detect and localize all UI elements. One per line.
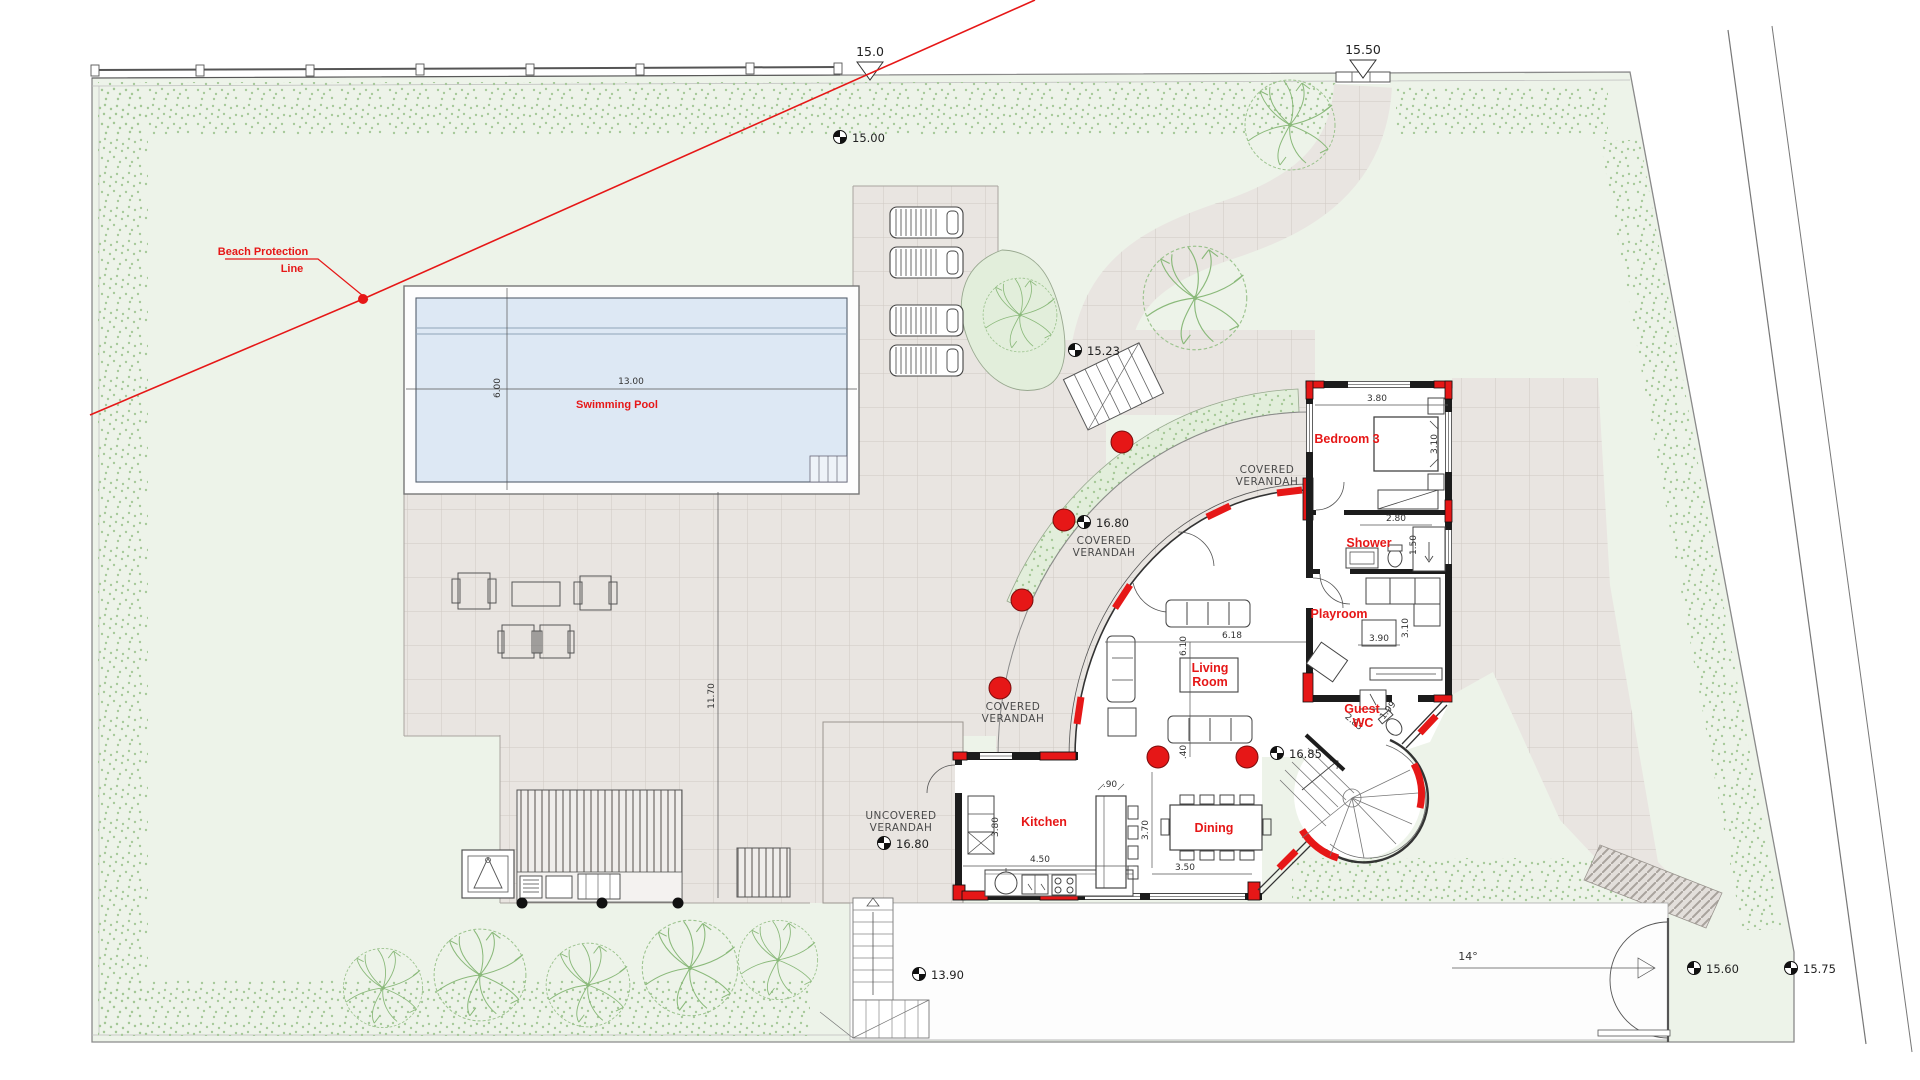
- label-covered-verandah-2b: VERANDAH: [1073, 547, 1136, 559]
- label-beach-protection-1: Beach Protection: [218, 246, 309, 258]
- marker-uncovered-verandah: 16.80: [896, 837, 929, 851]
- dim-pool-length: 13.00: [618, 377, 644, 387]
- dim-living-offset: .40: [1179, 745, 1189, 760]
- label-covered-verandah-1b: VERANDAH: [1236, 476, 1299, 488]
- marker-road: 15.75: [1803, 962, 1836, 976]
- label-beach-protection-2: Line: [281, 263, 304, 275]
- outdoor-shower-box: [462, 850, 514, 898]
- site-plan-page: 13.00 6.00 Swimming Pool 11.70: [0, 0, 1920, 1080]
- dim-kitchen-depth: 3.80: [991, 817, 1001, 837]
- label-guest-2: WC: [1353, 716, 1374, 730]
- label-playroom: Playroom: [1311, 607, 1368, 621]
- marker-plot-top: 15.0: [856, 44, 884, 59]
- marker-garden-nw: 15.00: [852, 131, 885, 145]
- dim-playroom-depth: 3.10: [1401, 618, 1411, 638]
- dim-bedroom-depth: 3.10: [1430, 434, 1440, 454]
- label-living-1: Living: [1192, 661, 1229, 675]
- label-covered-verandah-1a: COVERED: [1240, 464, 1295, 476]
- dim-driveway-angle: 14°: [1458, 950, 1478, 963]
- label-covered-verandah-2a: COVERED: [1077, 535, 1132, 547]
- label-uncovered-verandah-a: UNCOVERED: [865, 810, 936, 822]
- site-plan: 13.00 6.00 Swimming Pool 11.70: [0, 0, 1920, 1080]
- label-covered-verandah-3b: VERANDAH: [982, 713, 1045, 725]
- dim-kitchen-width: 4.50: [1030, 855, 1050, 865]
- marker-driveway-gate: 15.60: [1706, 962, 1739, 976]
- marker-pool-terrace: 15.23: [1087, 344, 1120, 358]
- dim-living-width: 6.18: [1222, 631, 1242, 641]
- dim-dining-depth: 3.70: [1141, 820, 1151, 840]
- swimming-pool: 13.00 6.00 Swimming Pool: [404, 286, 859, 494]
- label-swimming-pool: Swimming Pool: [576, 399, 658, 411]
- marker-covered-verandah: 16.80: [1096, 516, 1129, 530]
- marker-living: 16.85: [1289, 747, 1322, 761]
- label-living-2: Room: [1192, 675, 1227, 689]
- label-shower: Shower: [1346, 536, 1391, 550]
- dim-pool-width: 6.00: [493, 378, 503, 398]
- dim-shower-depth: 1.50: [1409, 535, 1419, 555]
- marker-lower-terrace: 13.90: [931, 968, 964, 982]
- pool-steps: [810, 456, 847, 482]
- dim-island-depth: .90: [1103, 780, 1118, 790]
- marker-entrance-top: 15.50: [1345, 42, 1381, 57]
- dim-shower-width: 2.80: [1386, 514, 1406, 524]
- label-uncovered-verandah-b: VERANDAH: [870, 822, 933, 834]
- dim-playroom-width: 3.90: [1369, 634, 1389, 644]
- label-kitchen: Kitchen: [1021, 815, 1067, 829]
- dim-living-depth: 6.10: [1179, 636, 1189, 656]
- dim-dining-width: 3.50: [1175, 863, 1195, 873]
- dim-bedroom-width: 3.80: [1367, 394, 1387, 404]
- label-covered-verandah-3a: COVERED: [986, 701, 1041, 713]
- label-guest-1: Guest: [1344, 702, 1380, 716]
- dim-terrace-side: 11.70: [707, 683, 717, 709]
- label-bedroom3: Bedroom 3: [1314, 432, 1379, 446]
- label-dining: Dining: [1195, 821, 1234, 835]
